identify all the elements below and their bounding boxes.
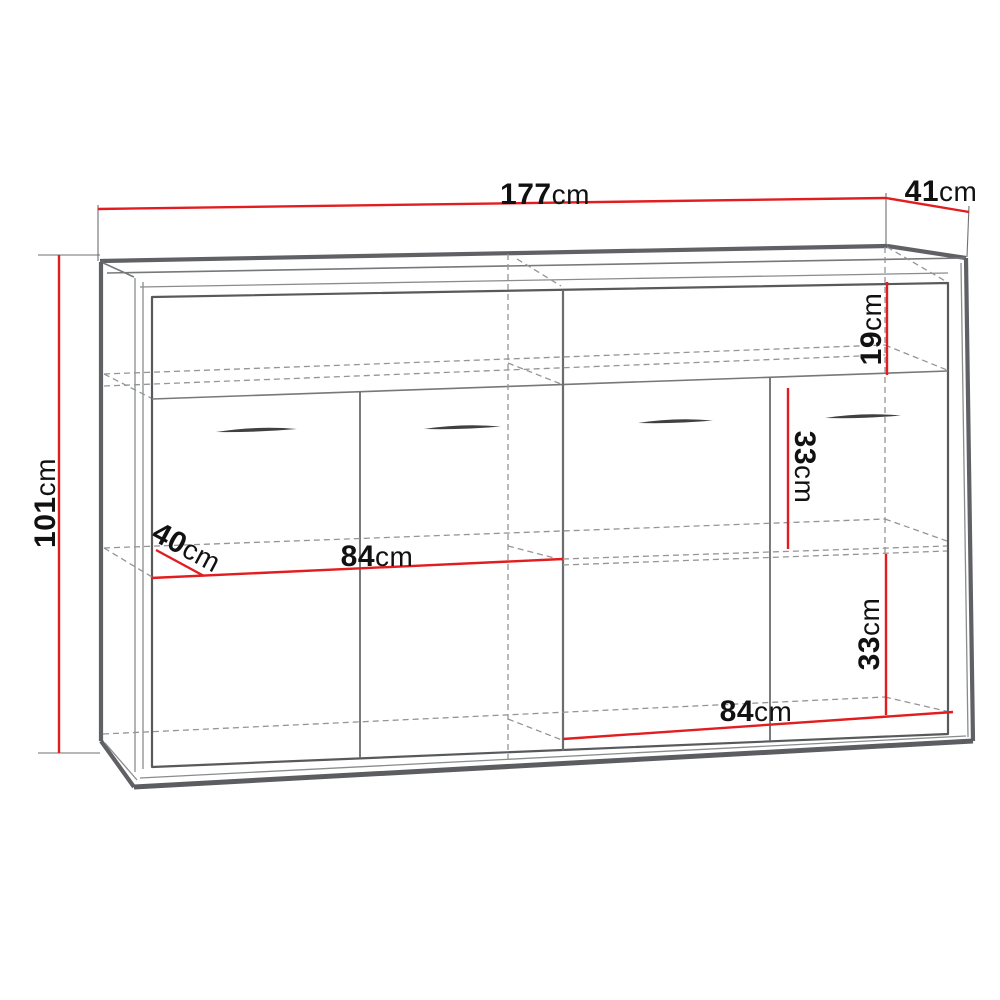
- dim-top-compartment-label: 19cm: [855, 293, 888, 366]
- drawing-canvas: 177cm 41cm 101cm 19cm 33cm 33cm 84cm 84c…: [0, 0, 1000, 1000]
- dim-bottom-compartment-label: 33cm: [853, 598, 886, 671]
- handle-door-2: [424, 425, 501, 429]
- furniture-dimension-diagram: 177cm 41cm 101cm 19cm 33cm 33cm 84cm 84c…: [0, 0, 1000, 1000]
- dim-width-label: 177cm: [500, 178, 590, 211]
- dimension-lines: [59, 198, 969, 753]
- dim-middle-compartment-label: 33cm: [788, 431, 821, 504]
- dim-left-shelf-label: 84cm: [341, 540, 414, 573]
- handle-door-1: [216, 428, 297, 432]
- cabinet-outline: [100, 246, 973, 787]
- handle-door-4: [825, 414, 901, 418]
- door-handles: [216, 414, 901, 432]
- dim-height-label: 101cm: [29, 458, 62, 548]
- handle-door-3: [638, 419, 713, 423]
- dim-line-width: [98, 198, 886, 209]
- hidden-lines: [103, 247, 950, 760]
- extension-lines: [38, 193, 969, 753]
- dim-right-shelf-label: 84cm: [720, 695, 793, 728]
- dim-depth-label: 41cm: [905, 175, 978, 208]
- dim-shelf-depth-label: 40cm: [147, 516, 227, 579]
